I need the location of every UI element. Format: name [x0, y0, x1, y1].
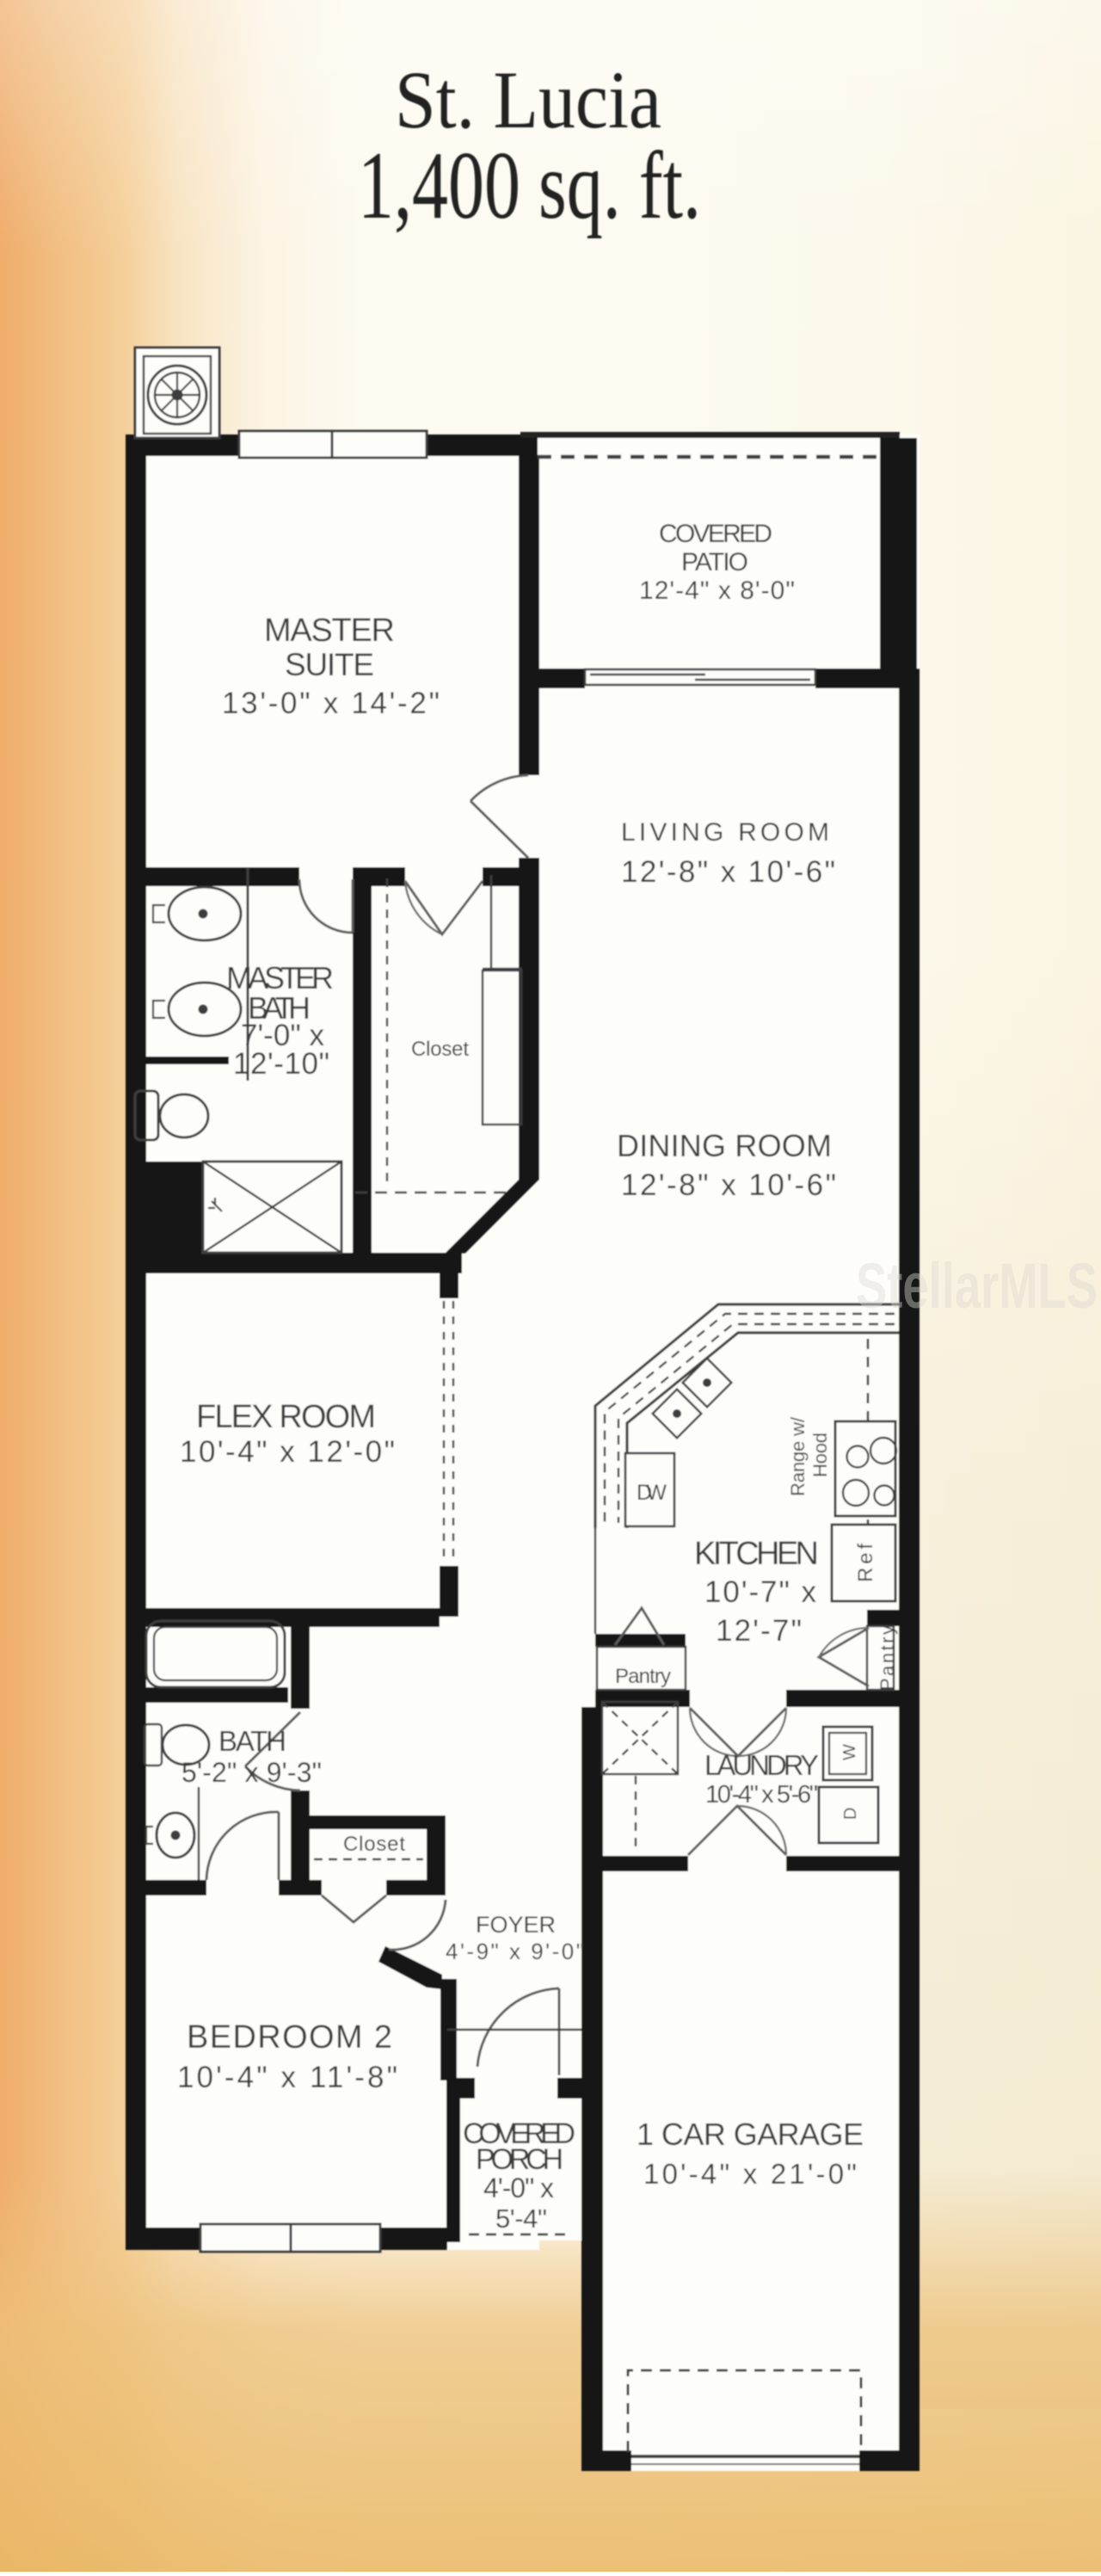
svg-text:FOYER: FOYER [476, 1912, 556, 1938]
svg-text:Closet: Closet [411, 1038, 469, 1061]
svg-text:12'-8" x 10'-6": 12'-8" x 10'-6" [621, 1168, 836, 1202]
svg-text:PORCH: PORCH [476, 2143, 563, 2176]
svg-text:Pantry: Pantry [876, 1625, 898, 1691]
svg-text:10'-4" x 5'-6": 10'-4" x 5'-6" [705, 1781, 818, 1809]
svg-text:4'-9" x 9'-0": 4'-9" x 9'-0" [446, 1938, 584, 1964]
svg-text:Pantry: Pantry [615, 1665, 671, 1688]
svg-text:W: W [840, 1744, 859, 1760]
svg-text:10'-4" x 21'-0": 10'-4" x 21'-0" [643, 2158, 857, 2190]
svg-text:KITCHEN: KITCHEN [694, 1536, 819, 1572]
svg-text:PATIO: PATIO [681, 548, 748, 576]
svg-text:D: D [841, 1808, 860, 1820]
svg-text:BEDROOM 2: BEDROOM 2 [187, 2019, 392, 2055]
svg-text:10'-4" x 11'-8": 10'-4" x 11'-8" [177, 2061, 397, 2094]
svg-text:MASTER: MASTER [264, 613, 395, 649]
svg-text:Ref: Ref [854, 1544, 877, 1582]
svg-text:BATH: BATH [218, 1725, 286, 1757]
svg-text:10'-4" x 12'-0": 10'-4" x 12'-0" [180, 1435, 395, 1469]
svg-text:Closet: Closet [343, 1833, 405, 1856]
svg-text:FLEX ROOM: FLEX ROOM [196, 1399, 376, 1435]
svg-text:5'-2" x 9'-3": 5'-2" x 9'-3" [181, 1757, 322, 1788]
svg-text:1 CAR GARAGE: 1 CAR GARAGE [637, 2117, 864, 2152]
svg-text:12'-4" x 8'-0": 12'-4" x 8'-0" [639, 576, 795, 605]
svg-text:DINING ROOM: DINING ROOM [617, 1128, 832, 1163]
svg-text:5'-4": 5'-4" [495, 2203, 547, 2234]
svg-text:13'-0" x 14'-2": 13'-0" x 14'-2" [222, 687, 440, 720]
svg-text:Range w/: Range w/ [787, 1416, 809, 1496]
svg-text:COVERED: COVERED [659, 520, 772, 548]
svg-text:SUITE: SUITE [285, 647, 374, 682]
svg-text:1,400 sq. ft.: 1,400 sq. ft. [358, 132, 701, 239]
svg-text:12'-10": 12'-10" [233, 1047, 329, 1081]
svg-text:12'-8" x 10'-6": 12'-8" x 10'-6" [621, 855, 835, 889]
svg-text:4'-0" x: 4'-0" x [483, 2172, 554, 2203]
svg-text:DW: DW [637, 1481, 667, 1505]
svg-text:LAUNDRY: LAUNDRY [704, 1749, 819, 1781]
svg-text:Hood: Hood [809, 1433, 831, 1477]
svg-text:StellarMLS: StellarMLS [856, 1250, 1098, 1322]
